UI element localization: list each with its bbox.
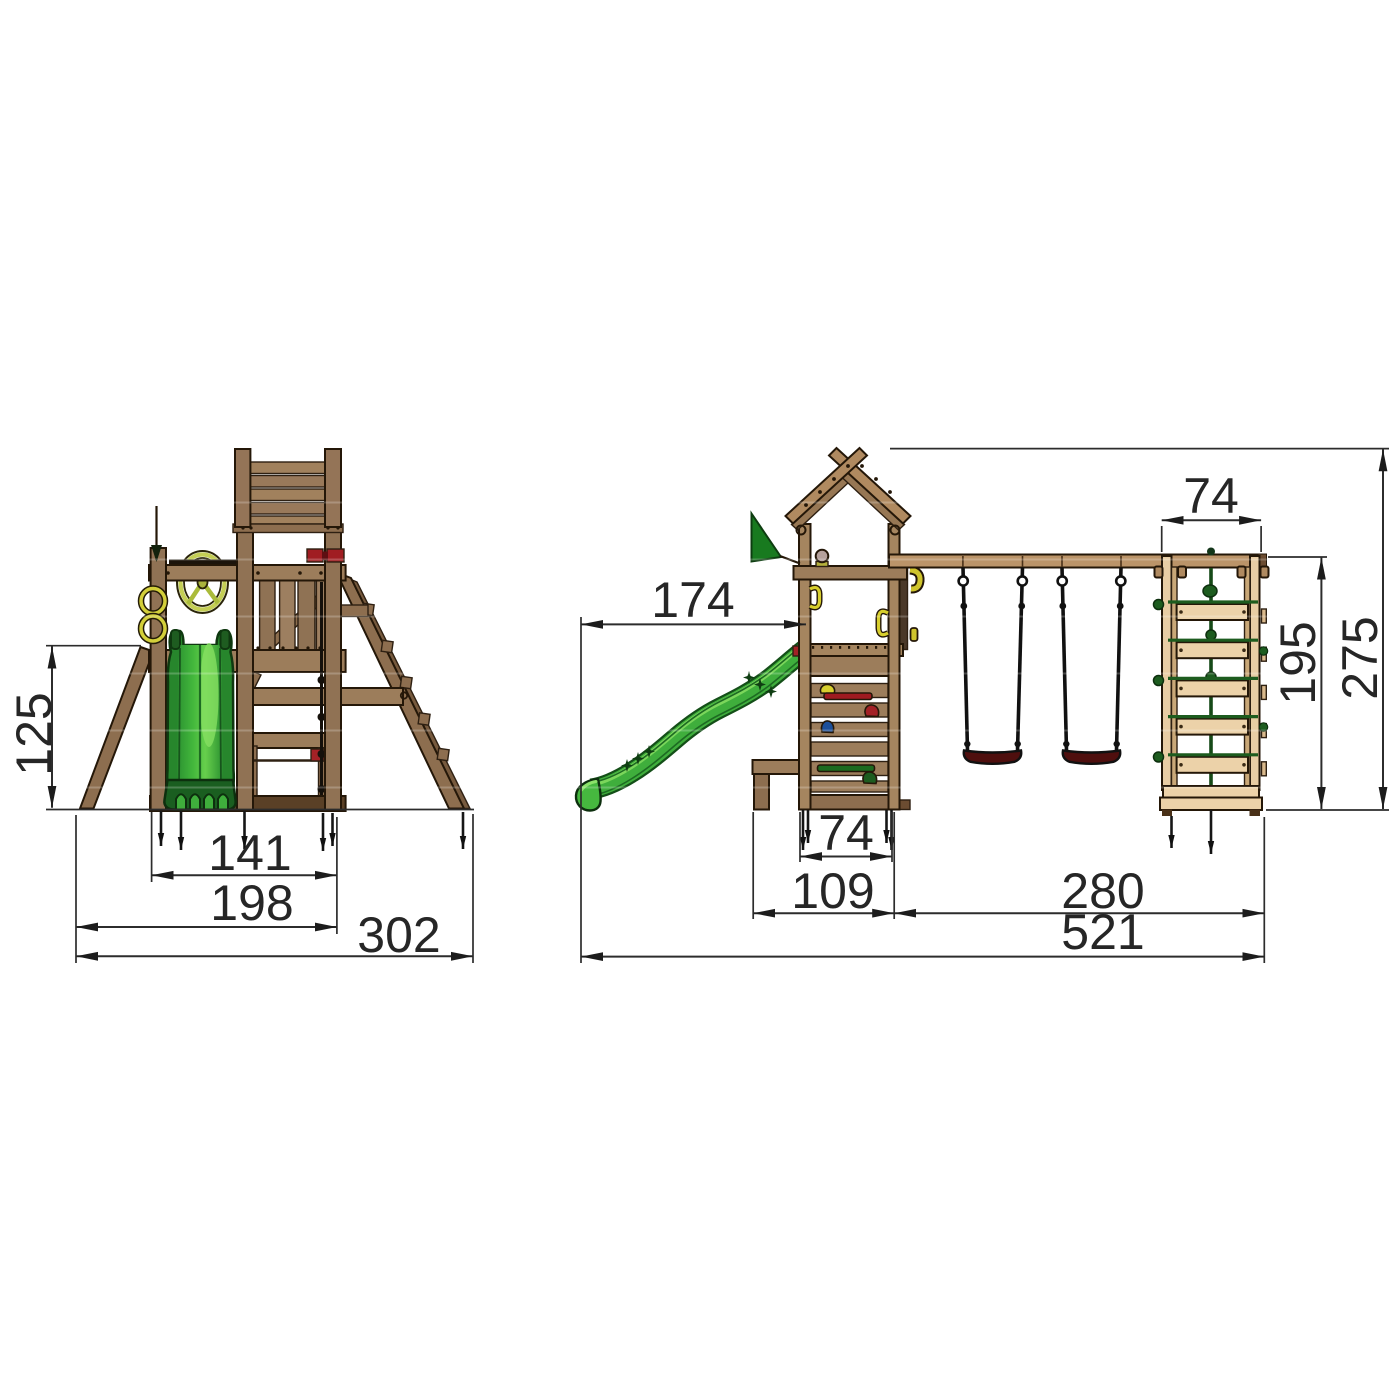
svg-text:74: 74	[1183, 468, 1239, 524]
svg-text:275: 275	[1332, 616, 1388, 699]
svg-text:195: 195	[1270, 621, 1326, 704]
svg-text:109: 109	[791, 863, 874, 919]
svg-text:198: 198	[210, 875, 293, 931]
svg-text:125: 125	[6, 692, 62, 775]
svg-text:74: 74	[818, 805, 874, 861]
svg-text:302: 302	[357, 907, 440, 963]
svg-text:174: 174	[651, 572, 734, 628]
svg-text:521: 521	[1061, 904, 1144, 960]
svg-text:141: 141	[208, 825, 291, 881]
